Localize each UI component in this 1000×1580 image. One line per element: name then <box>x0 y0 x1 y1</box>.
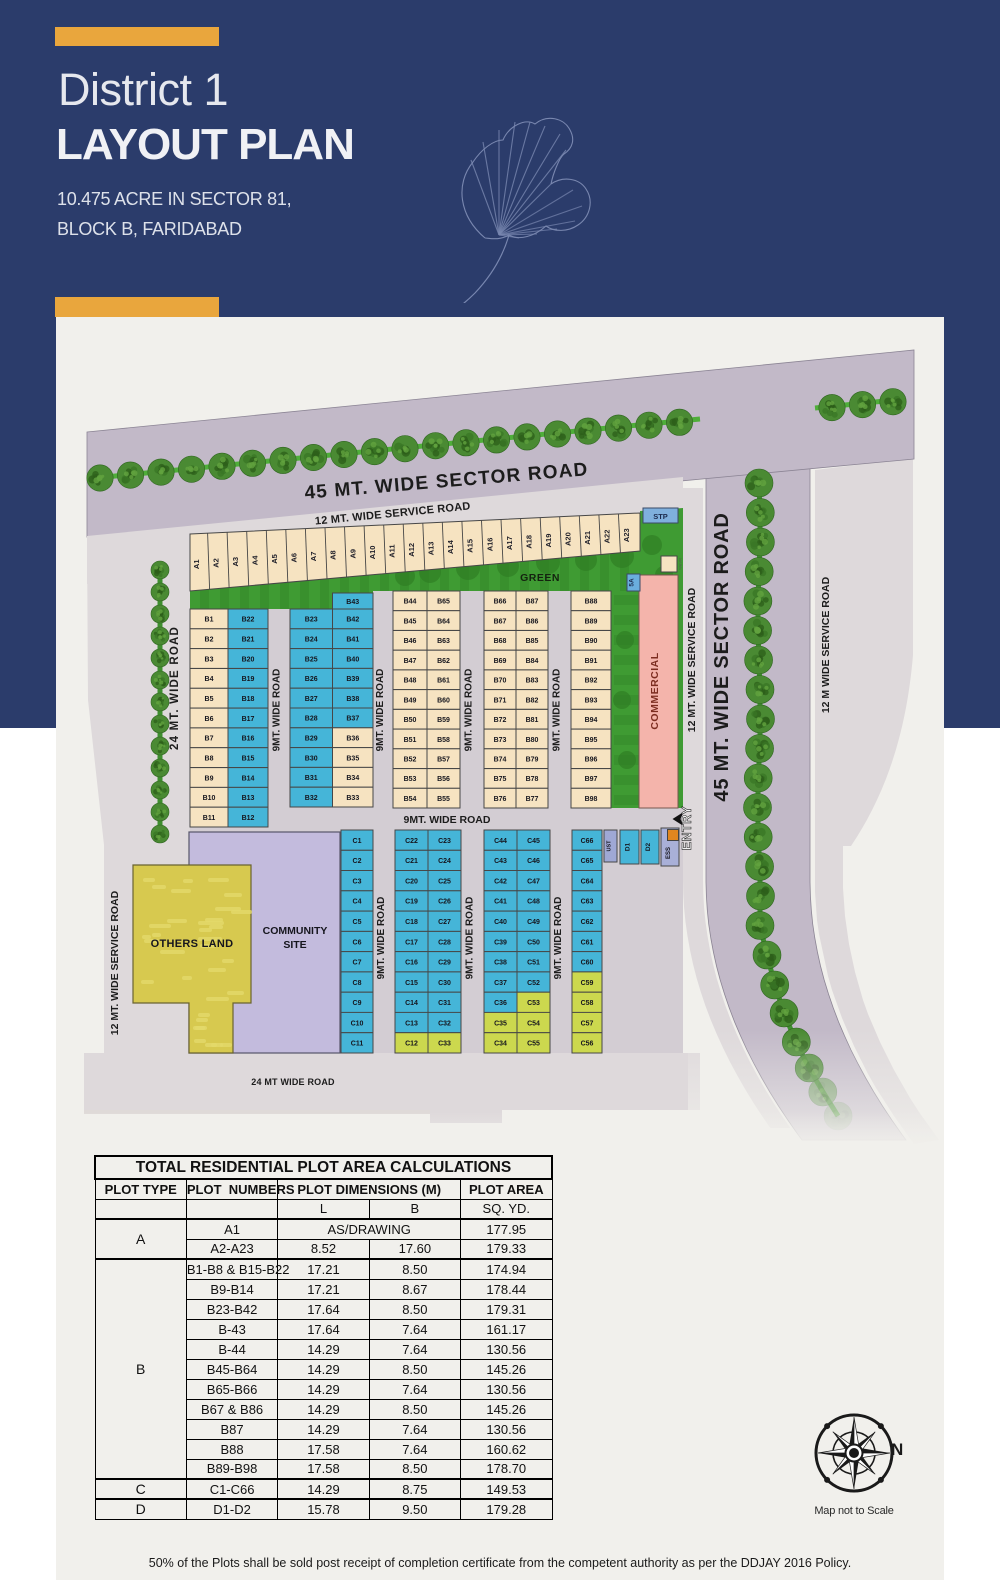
svg-text:B74: B74 <box>494 757 507 764</box>
svg-text:B96: B96 <box>585 757 598 764</box>
svg-text:C6: C6 <box>353 939 362 946</box>
svg-text:B47: B47 <box>404 658 417 665</box>
svg-text:C9: C9 <box>353 1000 362 1007</box>
svg-text:C32: C32 <box>438 1020 451 1027</box>
svg-text:B40: B40 <box>346 656 359 663</box>
svg-text:B73: B73 <box>494 737 507 744</box>
svg-text:B94: B94 <box>585 717 598 724</box>
svg-text:C1: C1 <box>353 838 362 845</box>
svg-text:B87: B87 <box>526 599 539 606</box>
svg-text:B63: B63 <box>437 638 450 645</box>
svg-text:B60: B60 <box>437 697 450 704</box>
svg-text:B89: B89 <box>585 618 598 625</box>
svg-text:C29: C29 <box>438 960 451 967</box>
svg-text:D1: D1 <box>625 842 632 851</box>
svg-text:B10: B10 <box>203 795 216 802</box>
svg-text:B64: B64 <box>437 618 450 625</box>
svg-text:B32: B32 <box>305 795 318 802</box>
svg-text:A4: A4 <box>251 555 260 565</box>
svg-text:C5: C5 <box>353 919 362 926</box>
svg-text:B76: B76 <box>494 796 507 803</box>
svg-text:C58: C58 <box>581 1000 594 1007</box>
svg-text:B23: B23 <box>305 617 318 624</box>
svg-text:A10: A10 <box>368 546 377 560</box>
svg-text:B68: B68 <box>494 638 507 645</box>
svg-text:B45: B45 <box>404 618 417 625</box>
svg-text:C25: C25 <box>438 879 451 886</box>
svg-text:B2: B2 <box>205 637 214 644</box>
svg-text:C66: C66 <box>581 838 594 845</box>
svg-text:B22: B22 <box>242 617 255 624</box>
svg-text:B50: B50 <box>404 717 417 724</box>
svg-text:B53: B53 <box>404 776 417 783</box>
svg-text:C4: C4 <box>353 899 362 906</box>
svg-text:B39: B39 <box>346 676 359 683</box>
svg-text:COMMUNITY: COMMUNITY <box>263 925 328 937</box>
svg-text:B65: B65 <box>437 599 450 606</box>
svg-text:C35: C35 <box>494 1020 507 1027</box>
svg-text:C15: C15 <box>405 980 418 987</box>
svg-text:C54: C54 <box>527 1020 540 1027</box>
svg-text:A3: A3 <box>231 557 240 567</box>
svg-text:C11: C11 <box>351 1041 364 1048</box>
svg-text:C21: C21 <box>405 858 418 865</box>
svg-text:C17: C17 <box>405 939 418 946</box>
svg-text:C36: C36 <box>494 1000 507 1007</box>
svg-text:B67: B67 <box>494 618 507 625</box>
svg-text:B34: B34 <box>346 775 359 782</box>
svg-text:B30: B30 <box>305 755 318 762</box>
svg-text:B48: B48 <box>404 678 417 685</box>
svg-text:B17: B17 <box>242 716 255 723</box>
svg-text:24 MT WIDE ROAD: 24 MT WIDE ROAD <box>251 1077 335 1087</box>
svg-text:B80: B80 <box>526 737 539 744</box>
svg-text:C31: C31 <box>438 1000 451 1007</box>
svg-text:B41: B41 <box>346 637 359 644</box>
svg-text:C52: C52 <box>527 980 540 987</box>
svg-text:C48: C48 <box>527 899 540 906</box>
svg-text:C8: C8 <box>353 980 362 987</box>
svg-text:A23: A23 <box>622 528 631 542</box>
svg-text:STP: STP <box>653 512 668 521</box>
svg-text:W&VR: W&VR <box>678 558 683 570</box>
svg-text:C33: C33 <box>438 1041 451 1048</box>
svg-text:A14: A14 <box>446 539 455 554</box>
svg-text:B31: B31 <box>305 775 318 782</box>
svg-text:B54: B54 <box>404 796 417 803</box>
svg-text:B27: B27 <box>305 696 318 703</box>
svg-text:9MT. WIDE ROAD: 9MT. WIDE ROAD <box>464 669 475 752</box>
svg-text:C14: C14 <box>405 1000 418 1007</box>
svg-text:B29: B29 <box>305 736 318 743</box>
svg-text:C46: C46 <box>527 858 540 865</box>
svg-text:C57: C57 <box>581 1020 594 1027</box>
svg-text:B28: B28 <box>305 716 318 723</box>
svg-text:B46: B46 <box>404 638 417 645</box>
svg-text:B26: B26 <box>305 676 318 683</box>
svg-text:B21: B21 <box>242 637 255 644</box>
svg-text:9MT. WIDE ROAD: 9MT. WIDE ROAD <box>404 814 491 826</box>
svg-text:B33: B33 <box>346 795 359 802</box>
svg-text:B75: B75 <box>494 776 507 783</box>
svg-text:C13: C13 <box>405 1020 418 1027</box>
svg-text:C47: C47 <box>527 879 540 886</box>
svg-text:B6: B6 <box>205 716 214 723</box>
svg-text:12 M WIDE SERVICE ROAD: 12 M WIDE SERVICE ROAD <box>820 576 832 713</box>
svg-text:C10: C10 <box>351 1020 364 1027</box>
svg-text:B70: B70 <box>494 678 507 685</box>
svg-text:C18: C18 <box>405 919 418 926</box>
svg-text:B5: B5 <box>205 696 214 703</box>
svg-text:B11: B11 <box>203 815 216 822</box>
svg-text:OTHERS LAND: OTHERS LAND <box>151 938 234 950</box>
svg-text:C26: C26 <box>438 899 451 906</box>
svg-text:B91: B91 <box>585 658 598 665</box>
svg-text:ESS: ESS <box>666 847 672 859</box>
svg-text:C34: C34 <box>494 1041 507 1048</box>
svg-text:C24: C24 <box>438 858 451 865</box>
svg-text:A2: A2 <box>211 558 220 568</box>
svg-text:A22: A22 <box>603 530 612 544</box>
svg-text:B16: B16 <box>242 736 255 743</box>
svg-text:C43: C43 <box>494 858 507 865</box>
svg-text:B15: B15 <box>242 755 255 762</box>
svg-text:B61: B61 <box>437 678 450 685</box>
svg-text:B93: B93 <box>585 697 598 704</box>
svg-text:C7: C7 <box>353 960 362 967</box>
svg-text:C40: C40 <box>494 919 507 926</box>
svg-text:B79: B79 <box>526 757 539 764</box>
svg-text:B90: B90 <box>585 638 598 645</box>
svg-text:C51: C51 <box>527 960 540 967</box>
svg-text:B85: B85 <box>526 638 539 645</box>
svg-text:B37: B37 <box>346 716 359 723</box>
svg-text:C42: C42 <box>494 879 507 886</box>
svg-text:ENTRY: ENTRY <box>680 806 694 851</box>
svg-text:A21: A21 <box>583 531 592 545</box>
svg-text:B51: B51 <box>404 737 417 744</box>
svg-text:B78: B78 <box>526 776 539 783</box>
svg-text:B59: B59 <box>437 717 450 724</box>
svg-text:C27: C27 <box>438 919 451 926</box>
svg-text:B24: B24 <box>305 637 318 644</box>
svg-text:B58: B58 <box>437 737 450 744</box>
svg-text:B82: B82 <box>526 697 539 704</box>
svg-text:B56: B56 <box>437 776 450 783</box>
svg-text:A16: A16 <box>485 538 494 552</box>
svg-text:B95: B95 <box>585 737 598 744</box>
svg-text:B49: B49 <box>404 697 417 704</box>
svg-text:D2: D2 <box>645 842 652 851</box>
svg-text:B77: B77 <box>526 796 539 803</box>
svg-text:A8: A8 <box>329 550 338 560</box>
svg-text:B9: B9 <box>205 775 214 782</box>
svg-text:B35: B35 <box>346 755 359 762</box>
svg-text:B7: B7 <box>205 736 214 743</box>
svg-text:B1: B1 <box>205 617 214 624</box>
svg-text:COMMERCIAL: COMMERCIAL <box>649 652 661 729</box>
svg-text:B52: B52 <box>404 757 417 764</box>
svg-text:A7: A7 <box>309 552 318 562</box>
svg-text:C39: C39 <box>494 939 507 946</box>
svg-text:B44: B44 <box>404 599 417 606</box>
svg-text:A15: A15 <box>466 539 475 553</box>
svg-text:9MT. WIDE ROAD: 9MT. WIDE ROAD <box>272 669 283 752</box>
svg-text:B62: B62 <box>437 658 450 665</box>
svg-text:A6: A6 <box>290 553 299 563</box>
svg-text:B86: B86 <box>526 618 539 625</box>
svg-text:12 MT. WIDE SERVICE ROAD: 12 MT. WIDE SERVICE ROAD <box>686 587 698 732</box>
svg-text:C41: C41 <box>494 899 507 906</box>
svg-text:C62: C62 <box>581 919 594 926</box>
svg-text:9MT. WIDE ROAD: 9MT. WIDE ROAD <box>375 669 386 752</box>
svg-text:C16: C16 <box>405 960 418 967</box>
svg-text:C63: C63 <box>581 899 594 906</box>
svg-text:B19: B19 <box>242 676 255 683</box>
svg-text:C50: C50 <box>527 939 540 946</box>
svg-text:5A: 5A <box>629 578 636 587</box>
svg-text:C12: C12 <box>405 1041 418 1048</box>
svg-text:9MT. WIDE ROAD: 9MT. WIDE ROAD <box>376 897 387 980</box>
svg-text:C30: C30 <box>438 980 451 987</box>
svg-text:B97: B97 <box>585 776 598 783</box>
svg-text:B12: B12 <box>242 815 255 822</box>
svg-text:C59: C59 <box>581 980 594 987</box>
svg-text:12 MT. WIDE SERVICE ROAD: 12 MT. WIDE SERVICE ROAD <box>109 890 121 1035</box>
svg-text:C60: C60 <box>581 960 594 967</box>
svg-text:B83: B83 <box>526 678 539 685</box>
svg-text:C55: C55 <box>527 1041 540 1048</box>
svg-text:B14: B14 <box>242 775 255 782</box>
svg-text:C44: C44 <box>494 838 507 845</box>
svg-text:B18: B18 <box>242 696 255 703</box>
svg-text:C22: C22 <box>405 838 418 845</box>
svg-text:B66: B66 <box>494 599 507 606</box>
svg-text:C53: C53 <box>527 1000 540 1007</box>
svg-text:B42: B42 <box>346 617 359 624</box>
svg-text:B84: B84 <box>526 658 539 665</box>
svg-text:A20: A20 <box>564 532 573 546</box>
svg-text:B57: B57 <box>437 757 450 764</box>
svg-text:C19: C19 <box>405 899 418 906</box>
svg-text:B13: B13 <box>242 795 255 802</box>
svg-text:45 MT. WIDE SECTOR ROAD: 45 MT. WIDE SECTOR ROAD <box>711 512 733 801</box>
svg-text:A17: A17 <box>505 536 514 550</box>
svg-text:B3: B3 <box>205 656 214 663</box>
svg-text:C65: C65 <box>581 858 594 865</box>
svg-text:C38: C38 <box>494 960 507 967</box>
svg-text:B98: B98 <box>585 796 598 803</box>
svg-text:C49: C49 <box>527 919 540 926</box>
svg-text:B92: B92 <box>585 678 598 685</box>
svg-text:A5: A5 <box>270 554 279 564</box>
svg-text:A18: A18 <box>524 535 533 549</box>
svg-text:B4: B4 <box>205 676 214 683</box>
svg-text:A9: A9 <box>348 549 357 559</box>
svg-text:B8: B8 <box>205 755 214 762</box>
svg-text:C2: C2 <box>353 858 362 865</box>
svg-text:GREEN: GREEN <box>520 572 560 584</box>
svg-text:UST: UST <box>607 840 613 852</box>
svg-text:SITE: SITE <box>283 939 306 951</box>
svg-text:C56: C56 <box>581 1041 594 1048</box>
svg-text:9MT. WIDE ROAD: 9MT. WIDE ROAD <box>553 897 564 980</box>
svg-text:C23: C23 <box>438 838 451 845</box>
svg-text:A11: A11 <box>387 544 396 557</box>
svg-text:C37: C37 <box>494 980 507 987</box>
svg-text:B69: B69 <box>494 658 507 665</box>
svg-text:B72: B72 <box>494 717 507 724</box>
svg-text:9MT. WIDE ROAD: 9MT. WIDE ROAD <box>465 897 476 980</box>
svg-text:A12: A12 <box>407 543 416 557</box>
svg-text:C3: C3 <box>353 879 362 886</box>
svg-text:24 MT. WIDE ROAD: 24 MT. WIDE ROAD <box>169 626 181 750</box>
svg-text:A13: A13 <box>427 542 436 556</box>
svg-text:B38: B38 <box>346 696 359 703</box>
svg-text:B20: B20 <box>242 656 255 663</box>
svg-text:B43: B43 <box>346 599 359 606</box>
svg-text:B88: B88 <box>585 599 598 606</box>
svg-text:C61: C61 <box>581 939 594 946</box>
svg-text:B81: B81 <box>526 717 539 724</box>
svg-text:A19: A19 <box>544 534 553 548</box>
svg-text:B36: B36 <box>346 736 359 743</box>
svg-text:C28: C28 <box>438 939 451 946</box>
svg-text:9MT. WIDE ROAD: 9MT. WIDE ROAD <box>552 669 563 752</box>
svg-text:A1: A1 <box>192 560 201 570</box>
svg-text:B25: B25 <box>305 656 318 663</box>
svg-text:C45: C45 <box>527 838 540 845</box>
svg-text:C64: C64 <box>581 879 594 886</box>
svg-text:B55: B55 <box>437 796 450 803</box>
svg-text:B71: B71 <box>494 697 507 704</box>
svg-text:C20: C20 <box>405 879 418 886</box>
